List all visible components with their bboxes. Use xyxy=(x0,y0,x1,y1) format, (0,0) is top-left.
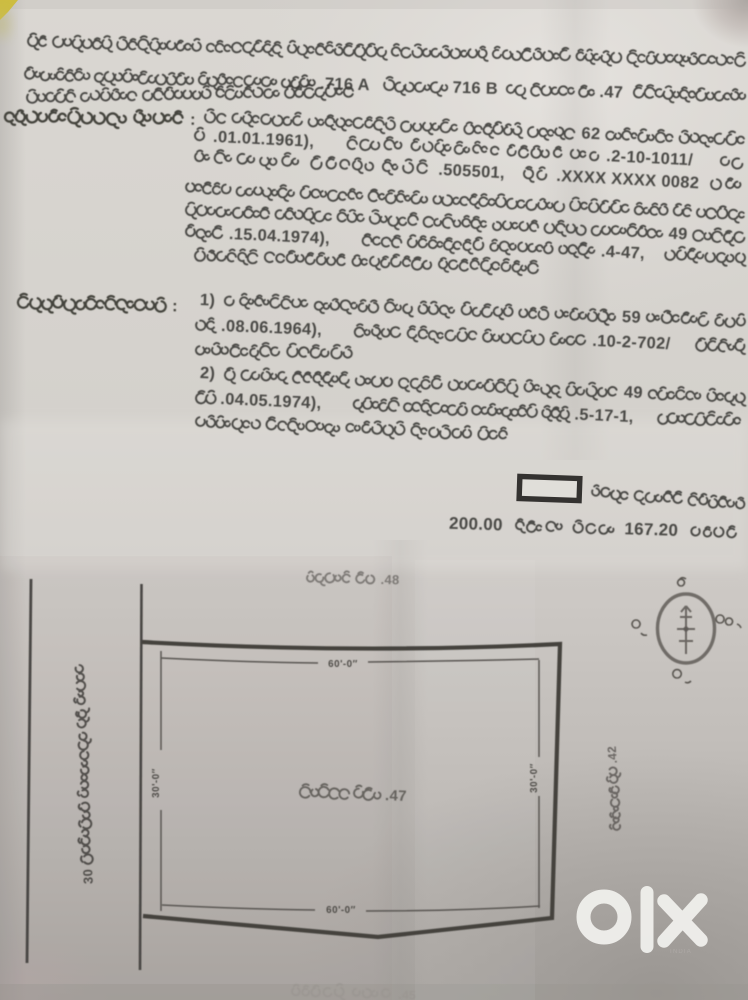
svg-text:.716 A: .716 A xyxy=(320,75,370,94)
svg-text:.47: .47 xyxy=(385,787,407,805)
svg-text:62: 62 xyxy=(581,124,601,143)
svg-text:200.00: 200.00 xyxy=(449,514,503,535)
svg-text:30'-0″: 30'-0″ xyxy=(151,768,162,798)
svg-text:.505501,: .505501, xyxy=(438,161,505,182)
svg-text:.10-2-702/: .10-2-702/ xyxy=(592,332,671,353)
svg-text:.45: .45 xyxy=(398,988,416,1000)
svg-text:30: 30 xyxy=(80,869,96,885)
svg-text:.42: .42 xyxy=(605,745,620,764)
svg-text:167.20: 167.20 xyxy=(624,519,678,540)
svg-text:.48: .48 xyxy=(380,572,399,587)
svg-text:49: 49 xyxy=(623,383,643,402)
svg-text:716 B: 716 B xyxy=(452,79,498,98)
svg-text::: : xyxy=(190,111,196,129)
svg-text:60'-0″: 60'-0″ xyxy=(328,659,358,670)
svg-text:INDIA: INDIA xyxy=(670,949,692,955)
svg-text:.4-47,: .4-47, xyxy=(601,243,646,263)
svg-text:60'-0″: 60'-0″ xyxy=(326,905,356,916)
svg-text:.47: .47 xyxy=(599,83,623,102)
svg-text:.5-17-1,: .5-17-1, xyxy=(574,406,634,427)
svg-text:59: 59 xyxy=(622,308,642,327)
svg-text:49: 49 xyxy=(668,225,688,244)
svg-text:2): 2) xyxy=(200,364,216,383)
svg-text:1): 1) xyxy=(200,291,216,310)
svg-text:30'-0″: 30'-0″ xyxy=(529,763,540,793)
svg-text::: : xyxy=(172,297,178,315)
